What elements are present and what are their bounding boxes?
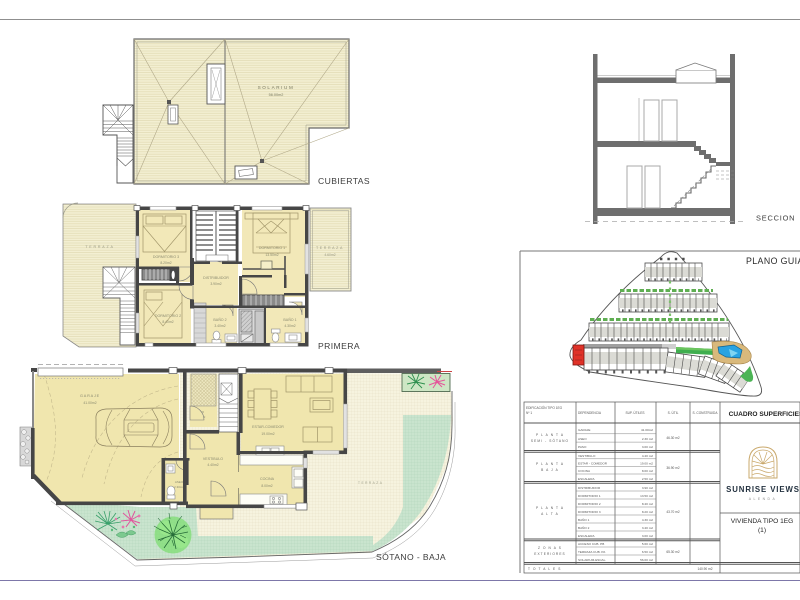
svg-text:8.00m2: 8.00m2 (261, 484, 272, 488)
svg-text:TERRAZA: TERRAZA (316, 246, 344, 250)
svg-text:VIVIENDA TIPO 1EG: VIVIENDA TIPO 1EG (731, 518, 794, 525)
svg-text:SUNRISE VIEWS: SUNRISE VIEWS (726, 485, 800, 494)
svg-text:65.30 m2: 65.30 m2 (666, 550, 680, 554)
svg-text:GARAJE: GARAJE (80, 394, 100, 398)
svg-text:P L A N T A: P L A N T A (536, 462, 564, 466)
svg-text:DORMITORIO 2: DORMITORIO 2 (578, 502, 601, 506)
svg-text:41.00m2: 41.00m2 (641, 428, 653, 432)
svg-text:4.40m2: 4.40m2 (207, 463, 218, 467)
svg-text:VESTIBULO: VESTIBULO (203, 457, 223, 461)
svg-text:DORMITORIO 2: DORMITORIO 2 (155, 314, 181, 318)
svg-text:SOLARIUM: SOLARIUM (258, 85, 295, 90)
svg-text:56.00 m2: 56.00 m2 (640, 558, 653, 562)
svg-text:EDIFICACIÓN TIPO 1EG: EDIFICACIÓN TIPO 1EG (526, 405, 563, 410)
svg-text:BAÑO 2: BAÑO 2 (213, 317, 226, 322)
svg-text:(1): (1) (758, 527, 766, 534)
svg-text:SECCION: SECCION (756, 214, 795, 223)
svg-text:EXTERIORES: EXTERIORES (534, 552, 566, 556)
svg-text:COCINA: COCINA (260, 477, 275, 481)
svg-text:4.40 m2: 4.40 m2 (642, 454, 653, 458)
svg-text:4.30 m2: 4.30 m2 (642, 518, 653, 522)
svg-text:8.40 m2: 8.40 m2 (642, 502, 653, 506)
svg-text:DISTRIBUIDOR: DISTRIBUIDOR (578, 486, 601, 490)
svg-text:TERRAZA: TERRAZA (85, 245, 114, 249)
svg-text:3.00 m2: 3.00 m2 (642, 534, 653, 538)
svg-text:S. CONSTRUIDA: S. CONSTRUIDA (693, 411, 719, 415)
svg-text:DORMITORIO 3: DORMITORIO 3 (578, 510, 601, 514)
svg-text:140.90 m2: 140.90 m2 (697, 567, 712, 571)
svg-text:A L T A: A L T A (541, 512, 559, 516)
svg-text:DORMITORIO 3: DORMITORIO 3 (153, 255, 179, 259)
svg-text:SOLARIUM-ESCAL.: SOLARIUM-ESCAL. (578, 558, 606, 562)
svg-text:PRIMERA: PRIMERA (318, 341, 360, 351)
svg-text:36.90 m2: 36.90 m2 (666, 466, 680, 470)
svg-text:ACCESO CUB. PB: ACCESO CUB. PB (578, 542, 604, 546)
svg-text:B A J A: B A J A (541, 468, 559, 472)
svg-text:P L A N T A: P L A N T A (536, 506, 564, 510)
svg-text:43.70 m2: 43.70 m2 (666, 510, 680, 514)
svg-text:8.20 m2: 8.20 m2 (642, 510, 653, 514)
svg-text:VESTIBULO: VESTIBULO (578, 454, 596, 458)
svg-text:TERRAZA: TERRAZA (358, 481, 383, 485)
svg-text:8.40m2: 8.40m2 (162, 320, 173, 324)
svg-text:4.60m2: 4.60m2 (324, 253, 335, 257)
svg-text:DORMITORIO 1: DORMITORIO 1 (578, 494, 601, 498)
svg-text:CUADRO SUPERFICIES: CUADRO SUPERFICIES (729, 411, 800, 418)
svg-text:ESTAR - COMEDOR: ESTAR - COMEDOR (578, 462, 608, 466)
svg-text:2.30m2: 2.30m2 (174, 485, 184, 489)
svg-text:41.00m2: 41.00m2 (83, 401, 96, 405)
svg-text:PLANO GUIA: PLANO GUIA (746, 256, 800, 266)
svg-text:2.30 m2: 2.30 m2 (642, 437, 653, 441)
svg-text:DISTRIBUIDOR: DISTRIBUIDOR (203, 276, 229, 280)
svg-text:GARAJE: GARAJE (578, 428, 590, 432)
svg-text:5.60 m2: 5.60 m2 (642, 542, 653, 546)
svg-text:Z O N A S: Z O N A S (538, 546, 562, 550)
svg-text:DORMITORIO 1: DORMITORIO 1 (259, 246, 285, 250)
svg-text:3.40 m2: 3.40 m2 (642, 526, 653, 530)
svg-text:ESCALERA: ESCALERA (578, 534, 595, 538)
svg-text:BAÑO 1: BAÑO 1 (578, 517, 590, 522)
svg-text:46.30 m2: 46.30 m2 (666, 436, 680, 440)
svg-text:SÓTANO - BAJA: SÓTANO - BAJA (376, 552, 446, 562)
svg-text:19.00 m2: 19.00 m2 (640, 462, 653, 466)
svg-text:ESCALERA: ESCALERA (578, 477, 595, 481)
svg-text:BAÑO 2: BAÑO 2 (578, 525, 590, 530)
svg-text:13.50 m2: 13.50 m2 (640, 494, 653, 498)
svg-text:P L A N T A: P L A N T A (536, 433, 564, 437)
svg-text:13.50m2: 13.50m2 (265, 253, 278, 257)
svg-text:COCINA: COCINA (578, 469, 591, 473)
svg-text:3.90 m2: 3.90 m2 (642, 486, 653, 490)
svg-text:3.40m2: 3.40m2 (214, 324, 225, 328)
svg-text:DEPENDENCIA: DEPENDENCIA (578, 411, 602, 415)
svg-text:4.30m2: 4.30m2 (284, 324, 295, 328)
svg-text:T O T A L E S: T O T A L E S (528, 567, 562, 571)
svg-text:CUBIERTAS: CUBIERTAS (318, 176, 370, 186)
svg-text:SUP. ÚTILES: SUP. ÚTILES (625, 410, 644, 415)
svg-text:SEMI - SÓTANO: SEMI - SÓTANO (531, 438, 569, 443)
svg-text:19.00m2: 19.00m2 (261, 432, 274, 436)
svg-text:3.90m2: 3.90m2 (210, 282, 221, 286)
svg-text:ESTAR-COMEDOR: ESTAR-COMEDOR (252, 425, 284, 429)
svg-text:ALENDA: ALENDA (749, 497, 778, 501)
svg-text:BAÑO 1: BAÑO 1 (283, 317, 296, 322)
svg-text:56.00m2: 56.00m2 (269, 93, 284, 97)
svg-text:ASEO: ASEO (175, 480, 184, 484)
svg-text:Nº 1: Nº 1 (526, 411, 532, 415)
svg-text:PASO: PASO (578, 445, 587, 449)
svg-text:S. ÚTIL: S. ÚTIL (668, 410, 679, 415)
svg-text:TERRAZA CUB. PA: TERRAZA CUB. PA (578, 550, 606, 554)
svg-text:3.00 m2: 3.00 m2 (642, 445, 653, 449)
svg-text:2.50 m2: 2.50 m2 (642, 477, 653, 481)
svg-text:8.20m2: 8.20m2 (160, 261, 171, 265)
svg-text:ASEO: ASEO (578, 437, 587, 441)
svg-text:8.00 m2: 8.00 m2 (642, 469, 653, 473)
svg-text:6.50 m2: 6.50 m2 (642, 550, 653, 554)
